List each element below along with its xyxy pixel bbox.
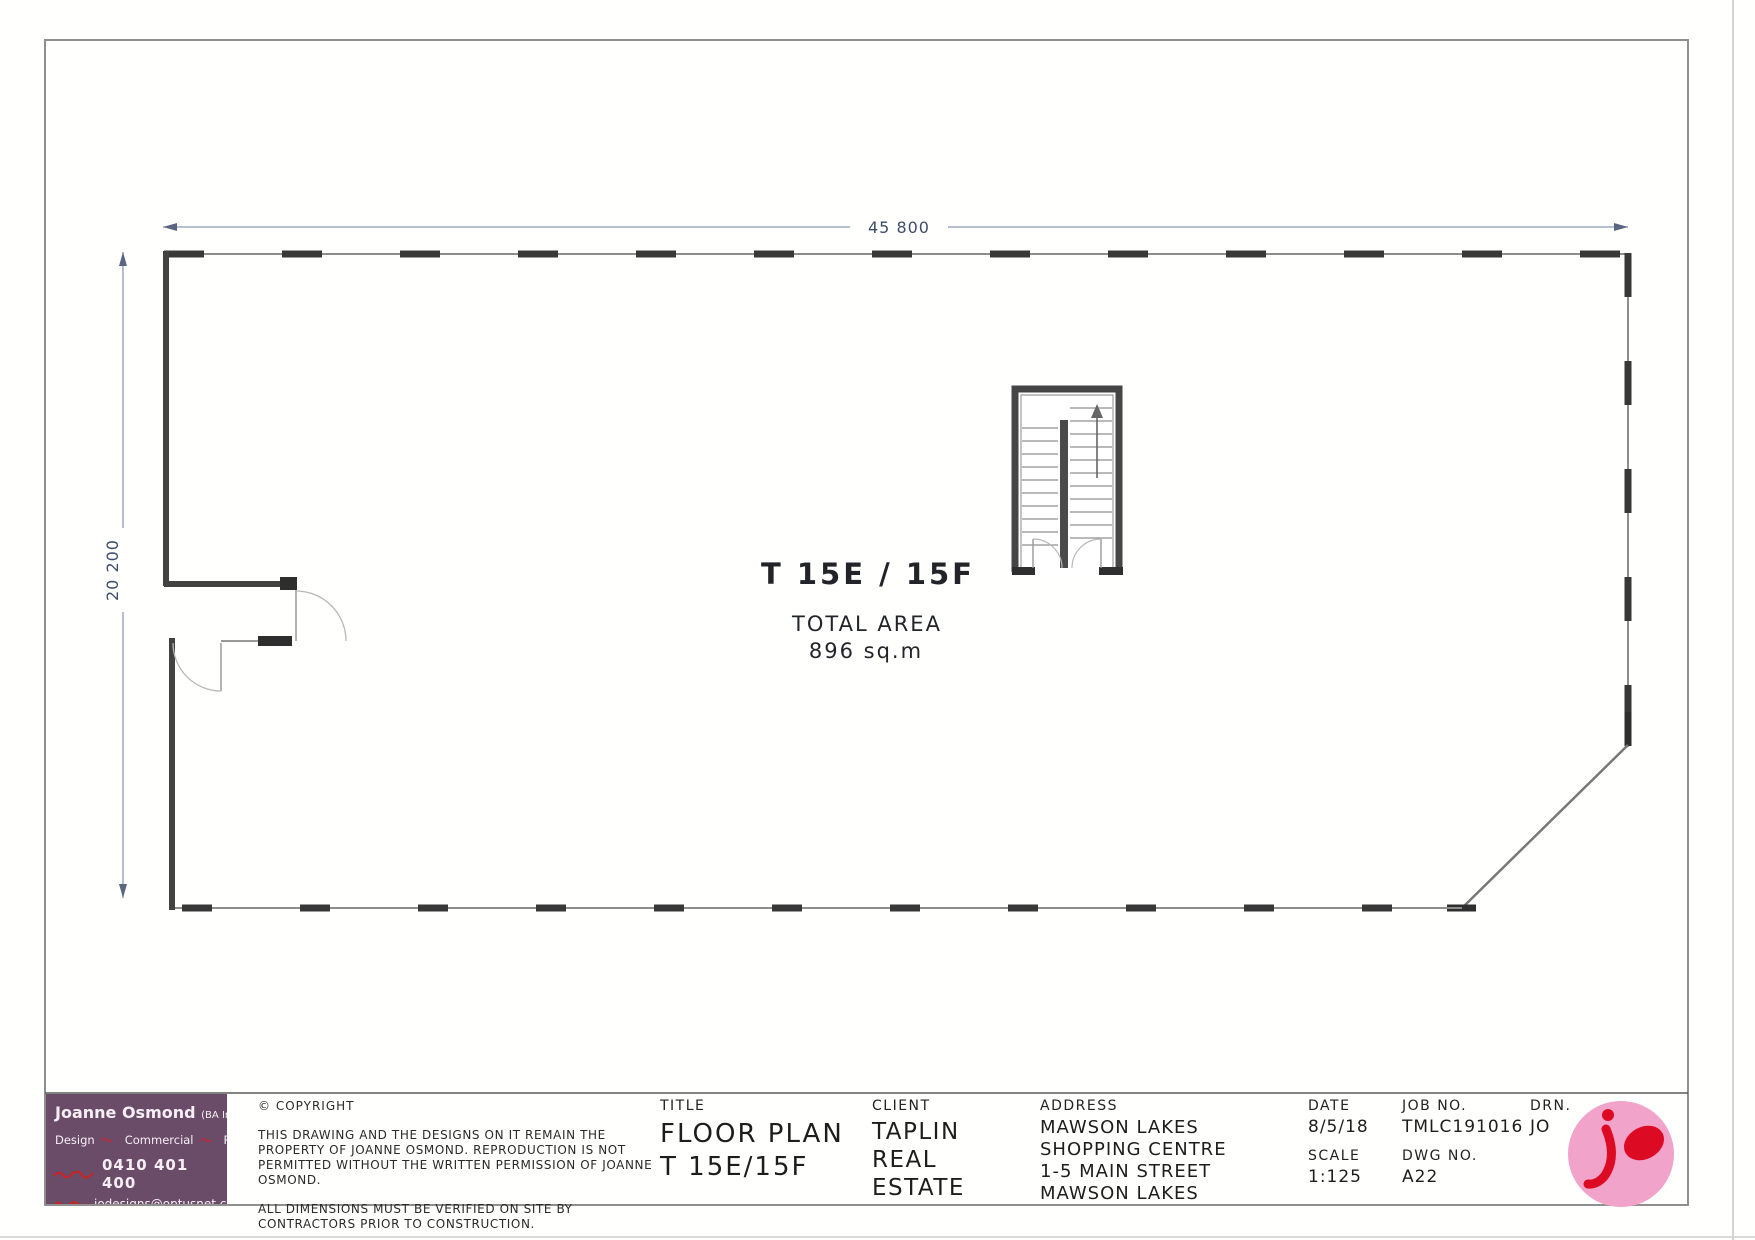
title-label: TITLE: [660, 1098, 844, 1114]
designer-phone-row: 0410 401 400: [52, 1156, 227, 1192]
address-line: 1-5 MAIN STREET: [1040, 1161, 1227, 1183]
copyright-body-2: ALL DIMENSIONS MUST BE VERIFIED ON SITE …: [258, 1202, 658, 1232]
field-scale: SCALE 1:125: [1308, 1148, 1362, 1187]
title-line1: FLOOR PLAN: [660, 1118, 844, 1151]
drn-value: JO: [1530, 1117, 1571, 1137]
stair-divider-wall: [1060, 420, 1068, 568]
red-script-mark-icon: [200, 1136, 212, 1144]
copyright-heading: © COPYRIGHT: [258, 1099, 658, 1114]
client-label: CLIENT: [872, 1098, 965, 1114]
drn-label: DRN.: [1530, 1098, 1571, 1114]
client-line: ESTATE: [872, 1174, 965, 1202]
designer-name: Joanne Osmond (BA Int. Des.): [55, 1103, 227, 1122]
jo-logo-glyph: [1568, 1101, 1674, 1207]
designer-services: Design Commercial Residential: [55, 1133, 227, 1147]
field-date: DATE 8/5/18: [1308, 1098, 1369, 1137]
service-commercial: Commercial: [125, 1133, 194, 1147]
dim-arrow-up: [119, 252, 127, 266]
address-line: MAWSON LAKES: [1040, 1117, 1227, 1139]
date-label: DATE: [1308, 1098, 1369, 1114]
field-title: TITLE FLOOR PLAN T 15E/15F: [660, 1098, 844, 1184]
stairwell: [1010, 383, 1125, 575]
field-drn: DRN. JO: [1530, 1098, 1571, 1137]
dwg-no-value: A22: [1402, 1167, 1478, 1187]
scale-value: 1:125: [1308, 1167, 1362, 1187]
dimension-left-label: 20 200: [103, 539, 122, 601]
designer-name-text: Joanne Osmond: [55, 1103, 196, 1122]
dwg-no-label: DWG NO.: [1402, 1148, 1478, 1164]
service-residential: Residential: [224, 1133, 228, 1147]
designer-email: jodesigns@optusnet.com.au: [94, 1197, 227, 1204]
client-line: TAPLIN: [872, 1118, 965, 1146]
total-area-value: 896 sq.m: [809, 639, 923, 663]
dim-arrow-left: [163, 223, 177, 231]
field-client: CLIENT TAPLIN REAL ESTATE: [872, 1098, 965, 1202]
room-name-label: T 15E / 15F: [761, 557, 975, 591]
designer-business-card: Joanne Osmond (BA Int. Des.) Design Comm…: [46, 1094, 227, 1204]
dimension-top-label: 45 800: [868, 218, 930, 237]
red-script-mark-icon: [101, 1136, 113, 1144]
drawing-sheet: 45 800 20 200: [0, 0, 1755, 1240]
service-design: Design: [55, 1133, 95, 1147]
address-line: MAWSON LAKES: [1040, 1183, 1227, 1205]
email-script-icon: [52, 1198, 88, 1204]
address-line: SHOPPING CENTRE: [1040, 1139, 1227, 1161]
jo-logo: [1568, 1101, 1674, 1207]
total-area-label: TOTAL AREA: [791, 612, 942, 636]
date-value: 8/5/18: [1308, 1117, 1369, 1137]
dim-arrow-right: [1614, 223, 1628, 231]
title-line2: T 15E/15F: [660, 1151, 844, 1184]
designer-credentials: (BA Int. Des.): [201, 1110, 227, 1121]
address-label: ADDRESS: [1040, 1098, 1227, 1114]
job-no-value: TMLC191016: [1402, 1117, 1523, 1137]
field-job-no: JOB NO. TMLC191016: [1402, 1098, 1523, 1137]
mobile-script-icon: [52, 1167, 96, 1181]
job-no-label: JOB NO.: [1402, 1098, 1523, 1114]
client-line: REAL: [872, 1146, 965, 1174]
copyright-block: © COPYRIGHT THIS DRAWING AND THE DESIGNS…: [258, 1099, 658, 1240]
field-dwg-no: DWG NO. A22: [1402, 1148, 1478, 1187]
floor-plan-drawing: 45 800 20 200: [0, 0, 1755, 1240]
copyright-body-1: THIS DRAWING AND THE DESIGNS ON IT REMAI…: [258, 1128, 658, 1188]
designer-phone: 0410 401 400: [102, 1156, 227, 1192]
field-address: ADDRESS MAWSON LAKES SHOPPING CENTRE 1-5…: [1040, 1098, 1227, 1205]
designer-email-row: jodesigns@optusnet.com.au: [52, 1197, 227, 1204]
scale-label: SCALE: [1308, 1148, 1362, 1164]
dim-arrow-down: [119, 884, 127, 898]
